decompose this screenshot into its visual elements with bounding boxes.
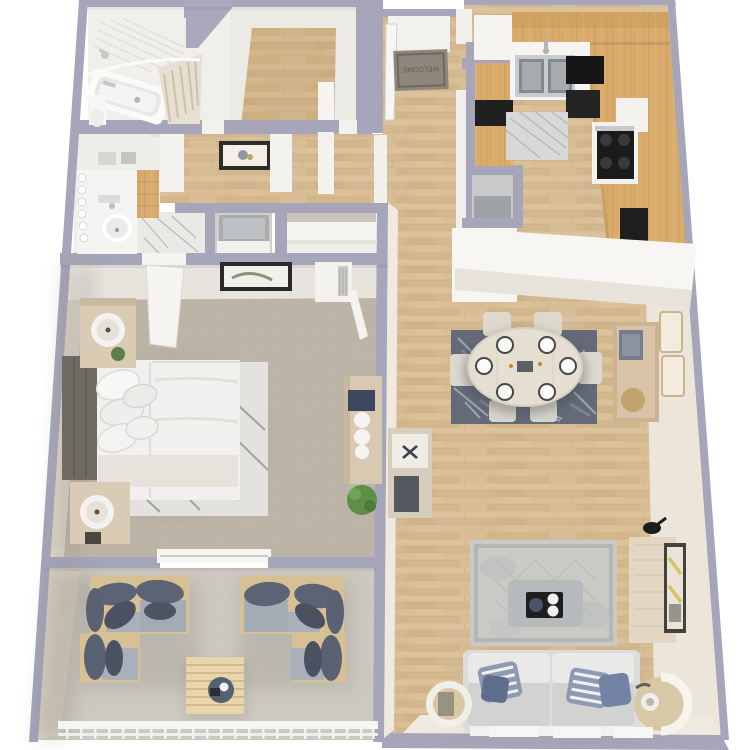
svg-text:WELCOME: WELCOME	[402, 64, 439, 72]
